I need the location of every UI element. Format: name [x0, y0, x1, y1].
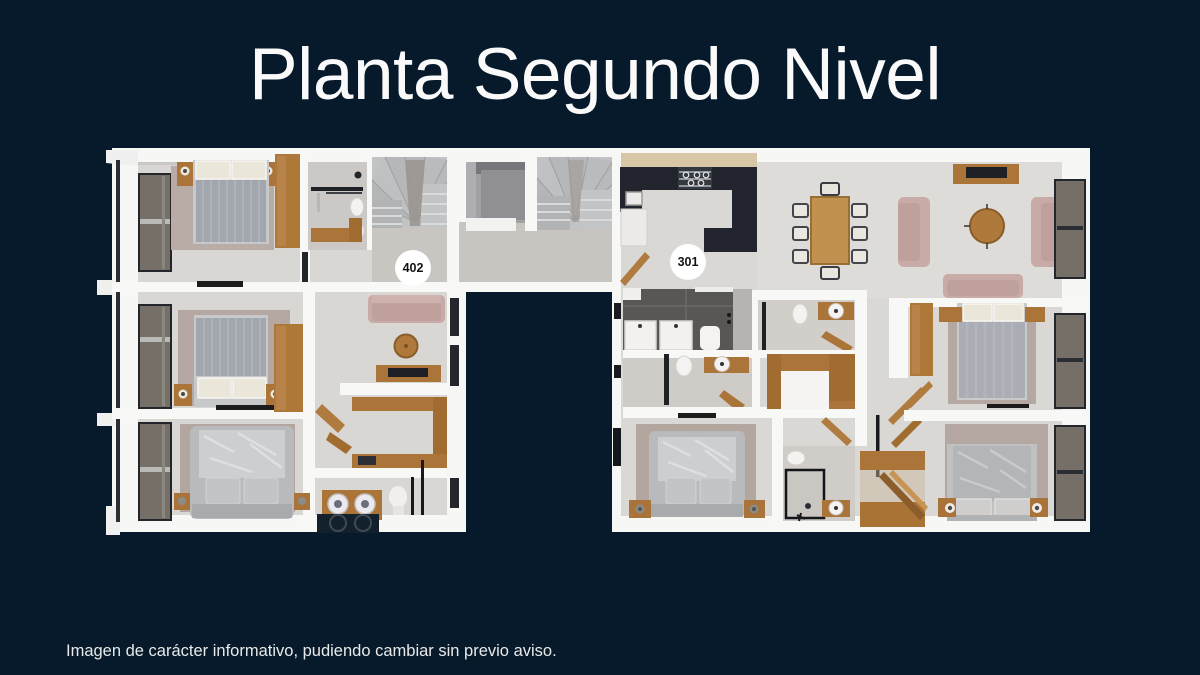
svg-text:402: 402	[403, 261, 424, 275]
svg-text:301: 301	[678, 255, 699, 269]
